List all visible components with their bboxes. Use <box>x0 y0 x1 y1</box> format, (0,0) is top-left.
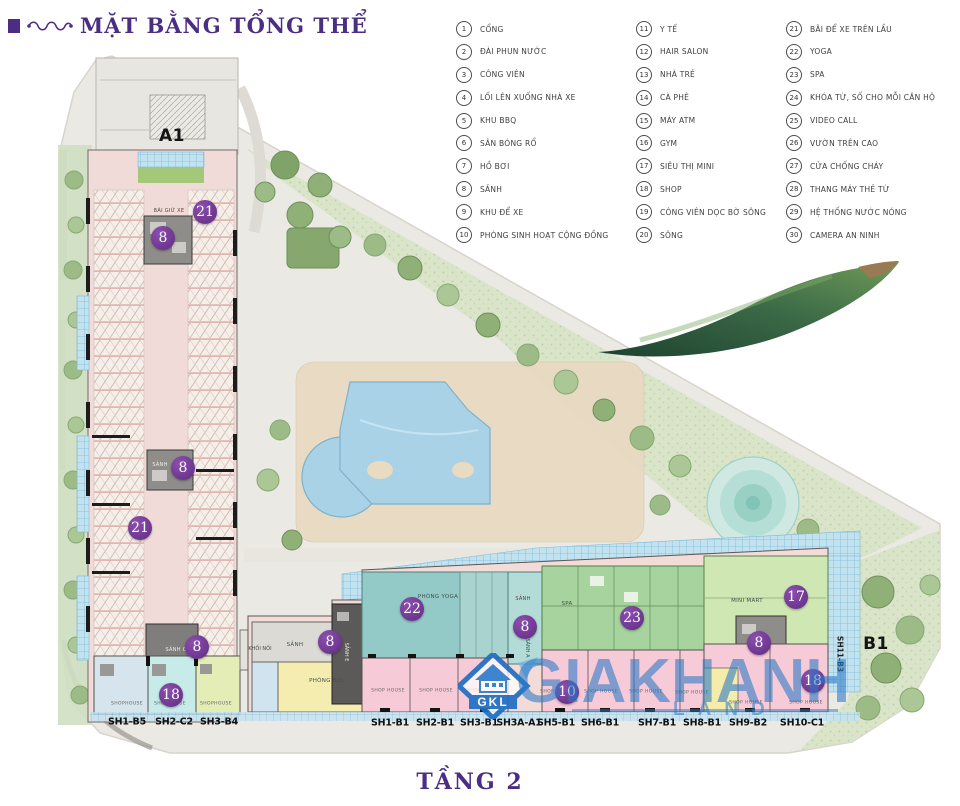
legend-item-label: LỐI LÊN XUỐNG NHÀ XE <box>480 93 576 102</box>
legend-item: 7HỒ BƠI <box>456 158 628 174</box>
legend-item-label: HỆ THỐNG NƯỚC NÓNG <box>810 208 907 217</box>
legend-number-badge: 28 <box>786 181 802 197</box>
legend-number-badge: 13 <box>636 67 652 83</box>
legend-number-badge: 26 <box>786 135 802 151</box>
legend-item-label: SIÊU THỊ MINI <box>660 162 714 171</box>
legend-number-badge: 19 <box>636 204 652 220</box>
legend-item: 23SPA <box>786 67 958 83</box>
legend-item: 17SIÊU THỊ MINI <box>636 158 784 174</box>
legend-item-label: CAMERA AN NINH <box>810 231 880 240</box>
legend-item: 27CỬA CHỐNG CHÁY <box>786 158 958 174</box>
location-badge: 21 <box>128 516 152 540</box>
shophouse-label: SHOPHOUSE <box>111 702 143 707</box>
legend-item-label: VƯỜN TRÊN CAO <box>810 139 878 148</box>
legend-item: 2ĐÀI PHUN NƯỚC <box>456 44 628 60</box>
location-badge: 8 <box>185 635 209 659</box>
location-badge: 17 <box>784 585 808 609</box>
legend-item-label: CÔNG VIÊN DỌC BỜ SÔNG <box>660 208 766 217</box>
unit-label: SH10-C1 <box>780 718 824 729</box>
legend-number-badge: 7 <box>456 158 472 174</box>
legend-item: 1CỔNG <box>456 21 628 37</box>
legend-number-badge: 2 <box>456 44 472 60</box>
unit-label: SH3A-A1 <box>496 718 541 729</box>
room-label: SẢNH <box>515 596 530 602</box>
legend-item: 28THANG MÁY THẺ TỪ <box>786 181 958 197</box>
legend-number-badge: 17 <box>636 158 652 174</box>
location-badge: 22 <box>400 597 424 621</box>
unit-label: SH1-B1 <box>371 718 409 729</box>
unit-label: SH5-B1 <box>537 718 575 729</box>
watermark-underline <box>572 709 838 712</box>
legend-item: 19CÔNG VIÊN DỌC BỜ SÔNG <box>636 204 784 220</box>
legend-item-label: KHU BBQ <box>480 116 516 125</box>
shophouse-label: SHOP HOUSE <box>419 689 453 694</box>
legend-number-badge: 11 <box>636 21 652 37</box>
legend-item-label: SẢNH <box>480 185 502 194</box>
shophouse-label: SHOP HOUSE <box>371 689 405 694</box>
legend-item-label: GYM <box>660 139 677 148</box>
legend-number-badge: 29 <box>786 204 802 220</box>
legend-item: 22YOGA <box>786 44 958 60</box>
legend-item: 10PHÒNG SINH HOẠT CỘNG ĐỒNG <box>456 227 628 243</box>
legend-item-label: SÂN BÓNG RỔ <box>480 139 537 148</box>
legend-item-label: CỬA CHỐNG CHÁY <box>810 162 883 171</box>
room-label: PHÒNG YOGA <box>418 594 458 600</box>
legend-number-badge: 1 <box>456 21 472 37</box>
legend-number-badge: 9 <box>456 204 472 220</box>
unit-label: SH1-B5 <box>108 717 146 728</box>
legend-item: 14CÀ PHÊ <box>636 90 784 106</box>
location-badge: 18 <box>159 683 183 707</box>
legend-item: 8SẢNH <box>456 181 628 197</box>
room-label: PHÒNG BQL <box>309 678 345 684</box>
legend-number-badge: 16 <box>636 135 652 151</box>
legend-item: 29HỆ THỐNG NƯỚC NÓNG <box>786 204 958 220</box>
legend-item-label: KHÓA TỪ, SỐ CHO MỖI CĂN HỘ <box>810 93 935 102</box>
floor-label: TẦNG 2 <box>416 769 523 795</box>
unit-label: SH2-B1 <box>416 718 454 729</box>
legend-number-badge: 25 <box>786 113 802 129</box>
legend-item-label: Y TẾ <box>660 25 677 34</box>
legend-item: 18SHOP <box>636 181 784 197</box>
legend-number-badge: 15 <box>636 113 652 129</box>
legend-item-label: ĐÀI PHUN NƯỚC <box>480 47 546 56</box>
site-plan-page: MẶT BẰNG TỔNG THỂ 1CỔNG2ĐÀI PHUN NƯỚC3CÔ… <box>0 0 960 806</box>
title-square-icon <box>8 19 20 33</box>
room-label: MINI MART <box>731 598 763 604</box>
legend-column: 1CỔNG2ĐÀI PHUN NƯỚC3CÔNG VIÊN4LỐI LÊN XU… <box>456 21 628 250</box>
legend-item-label: SHOP <box>660 185 682 194</box>
legend-item-label: KHU ĐỂ XE <box>480 208 524 217</box>
legend-item-label: PHÒNG SINH HOẠT CỘNG ĐỒNG <box>480 231 608 240</box>
legend-number-badge: 24 <box>786 90 802 106</box>
legend-number-badge: 6 <box>456 135 472 151</box>
location-badge: 8 <box>151 226 175 250</box>
unit-label: SH2-C2 <box>155 717 193 728</box>
legend-item: 5KHU BBQ <box>456 113 628 129</box>
vertical-room-label: SẢNH E <box>343 643 349 662</box>
page-header: MẶT BẰNG TỔNG THỂ <box>8 13 368 38</box>
legend-item-label: HỒ BƠI <box>480 162 510 171</box>
legend-column: 11Y TẾ12HAIR SALON13NHÀ TRẺ14CÀ PHÊ15MÁY… <box>636 21 784 250</box>
legend-item-label: YOGA <box>810 47 832 56</box>
legend-number-badge: 5 <box>456 113 472 129</box>
legend-number-badge: 30 <box>786 227 802 243</box>
legend-item: 6SÂN BÓNG RỔ <box>456 135 628 151</box>
location-badge: 21 <box>193 200 217 224</box>
legend-item: 25VIDEO CALL <box>786 113 958 129</box>
page-title: MẶT BẰNG TỔNG THỂ <box>80 13 368 38</box>
building-label: A1 <box>159 126 185 146</box>
legend-item-label: CỔNG <box>480 25 504 34</box>
legend-column: 21BÃI ĐỂ XE TRÊN LẦU22YOGA23SPA24KHÓA TỪ… <box>786 21 958 250</box>
shophouse-label: SHOPHOUSE <box>200 702 232 707</box>
legend-number-badge: 18 <box>636 181 652 197</box>
legend-item: 30CAMERA AN NINH <box>786 227 958 243</box>
legend-number-badge: 4 <box>456 90 472 106</box>
legend-number-badge: 12 <box>636 44 652 60</box>
legend-item: 24KHÓA TỪ, SỐ CHO MỖI CĂN HỘ <box>786 90 958 106</box>
location-badge: 8 <box>513 615 537 639</box>
location-badge: 8 <box>318 630 342 654</box>
legend-item-label: SÔNG <box>660 231 683 240</box>
legend-item-label: BÃI ĐỂ XE TRÊN LẦU <box>810 25 892 34</box>
unit-label: SH7-B1 <box>638 718 676 729</box>
legend-number-badge: 3 <box>456 67 472 83</box>
legend-item-label: HAIR SALON <box>660 47 709 56</box>
legend-item: 11Y TẾ <box>636 21 784 37</box>
legend-item: 4LỐI LÊN XUỐNG NHÀ XE <box>456 90 628 106</box>
room-label: SẢNH C <box>166 647 187 653</box>
legend-item-label: CÔNG VIÊN <box>480 70 525 79</box>
legend-item: 3CÔNG VIÊN <box>456 67 628 83</box>
legend-item-label: MÁY ATM <box>660 116 695 125</box>
legend-item: 13NHÀ TRẺ <box>636 67 784 83</box>
location-badge: 8 <box>171 456 195 480</box>
legend-item-label: VIDEO CALL <box>810 116 857 125</box>
legend-item: 16GYM <box>636 135 784 151</box>
legend-number-badge: 21 <box>786 21 802 37</box>
legend-number-badge: 22 <box>786 44 802 60</box>
legend-item: 20SÔNG <box>636 227 784 243</box>
unit-label: SH6-B1 <box>581 718 619 729</box>
legend-number-badge: 27 <box>786 158 802 174</box>
room-label: SẢNH <box>152 462 167 468</box>
legend-item: 21BÃI ĐỂ XE TRÊN LẦU <box>786 21 958 37</box>
legend-item-label: NHÀ TRẺ <box>660 70 695 79</box>
unit-label: SH3-B4 <box>200 717 238 728</box>
gkl-logo-text: GKL <box>477 695 508 709</box>
legend-number-badge: 14 <box>636 90 652 106</box>
legend-number-badge: 10 <box>456 227 472 243</box>
room-label: SPA <box>561 601 572 607</box>
room-label: KHỐI NỐI <box>247 646 273 653</box>
legend-item-label: SPA <box>810 70 825 79</box>
legend-number-badge: 8 <box>456 181 472 197</box>
legend-item-label: CÀ PHÊ <box>660 93 689 102</box>
location-badge: 23 <box>620 606 644 630</box>
legend-item: 9KHU ĐỂ XE <box>456 204 628 220</box>
ornament-icon <box>27 18 73 34</box>
legend-item: 12HAIR SALON <box>636 44 784 60</box>
legend-number-badge: 20 <box>636 227 652 243</box>
legend-number-badge: 23 <box>786 67 802 83</box>
legend-item: 26VƯỜN TRÊN CAO <box>786 135 958 151</box>
unit-label: SH3-B1 <box>460 718 498 729</box>
legend-item-label: THANG MÁY THẺ TỪ <box>810 185 890 194</box>
legend-item: 15MÁY ATM <box>636 113 784 129</box>
room-label: BÃI GIỮ XE <box>154 208 185 214</box>
building-label: B1 <box>863 634 889 654</box>
room-label: SẢNH <box>287 642 304 648</box>
